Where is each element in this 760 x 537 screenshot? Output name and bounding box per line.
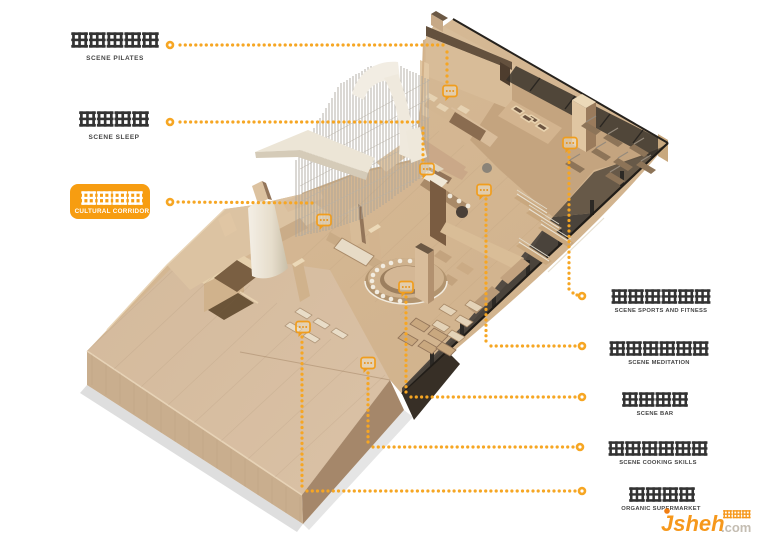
svg-text:SCENE BAR: SCENE BAR (637, 411, 674, 417)
svg-text:SCENE SLEEP: SCENE SLEEP (88, 134, 139, 141)
svg-text:SCENE MEDITATION: SCENE MEDITATION (628, 360, 690, 366)
svg-text:SCENE PILATES: SCENE PILATES (86, 55, 144, 62)
svg-text:SCENE SPORTS AND FITNESS: SCENE SPORTS AND FITNESS (615, 308, 708, 314)
svg-text:CULTURAL CORRIDOR: CULTURAL CORRIDOR (75, 208, 150, 215)
svg-text:SCENE COOKING SKILLS: SCENE COOKING SKILLS (619, 460, 697, 466)
svg-text:Jsheh: Jsheh (661, 511, 725, 536)
svg-text:.com: .com (721, 520, 751, 535)
